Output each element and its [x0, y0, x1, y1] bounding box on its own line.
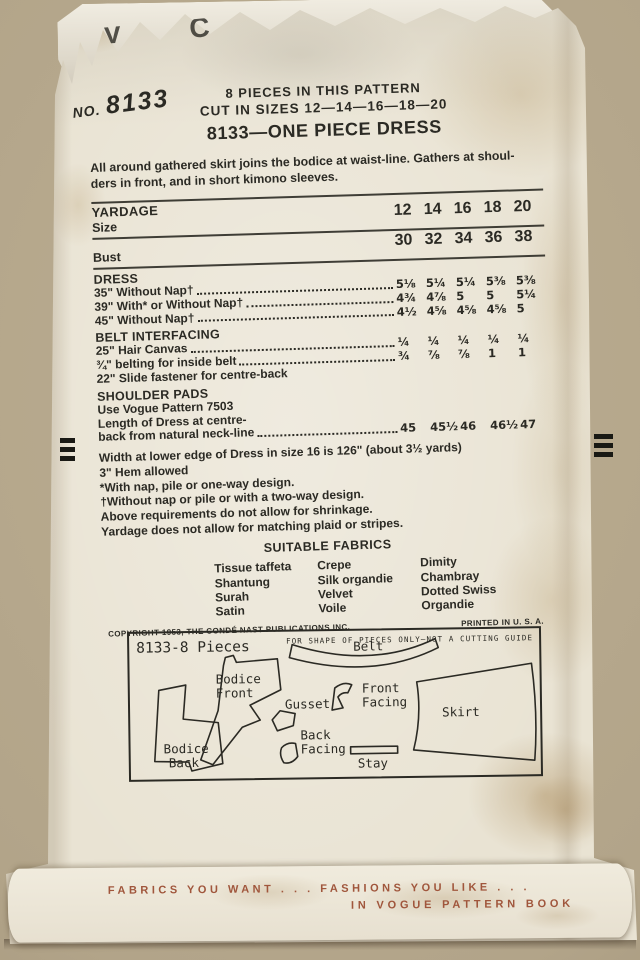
length-value: 45½ [430, 420, 460, 435]
suitable-fabrics-columns: Tissue taffetaShantungSurahSatinCrepeSil… [214, 552, 556, 619]
envelope-header: 8 PIECES IN THIS PATTERN CUT IN SIZES 12… [88, 77, 542, 148]
fabric-item: Organdie [421, 596, 497, 612]
front-facing-label: Facing [362, 694, 407, 710]
length-value: 47 [520, 418, 550, 433]
yardage-row-label: 45" Without Nap† [95, 312, 195, 329]
fabric-column: DimityChambrayDotted SwissOrgandie [420, 554, 497, 613]
yardage-value: 4⅝ [457, 303, 487, 318]
length-value: 46½ [490, 419, 520, 434]
dotted-leader [257, 431, 397, 437]
size-value: 12 [393, 201, 424, 220]
diagram-note: FOR SHAPE OF PIECES ONLY—NOT A CUTTING G… [286, 633, 533, 645]
bodice-back-label: Bodice [164, 741, 209, 757]
registration-marks-left [60, 438, 75, 465]
back-facing-piece-outline [280, 743, 297, 763]
yardage-value: ¾ [398, 349, 428, 364]
registration-bar [60, 456, 75, 461]
bust-value: 36 [484, 228, 515, 247]
yardage-value: 5¼ [456, 275, 486, 290]
yardage-value: ⅞ [458, 347, 488, 362]
fabric-item: Satin [215, 601, 318, 618]
fabric-item: Dotted Swiss [421, 582, 497, 598]
yardage-value: 1 [518, 346, 548, 361]
pattern-pieces-diagram: 8133-8 Pieces FOR SHAPE OF PIECES ONLY—N… [127, 626, 543, 782]
size-value: 20 [513, 198, 544, 217]
yardage-value: ¼ [487, 333, 517, 348]
registration-bar [594, 443, 613, 448]
back-facing-label: Facing [301, 741, 346, 757]
garment-description: All around gathered skirt joins the bodi… [90, 148, 543, 192]
size-value: 16 [453, 199, 484, 218]
gusset-label: Gusset [285, 696, 330, 712]
yardage-value: ¼ [397, 335, 427, 350]
yardage-value: 5 [486, 288, 516, 303]
printed-content: 8 PIECES IN THIS PATTERN CUT IN SIZES 12… [88, 77, 556, 639]
yardage-value: ¼ [427, 335, 457, 350]
yardage-value: 4⅞ [426, 290, 456, 305]
fabric-column: CrepeSilk organdieVelvetVoile [317, 556, 422, 616]
yardage-value: ⅞ [428, 348, 458, 363]
length-value: 46 [460, 420, 490, 435]
yardage-value: 4¾ [396, 291, 426, 306]
notes-block: Width at lower edge of Dress in size 16 … [99, 438, 553, 540]
yardage-value: 1 [488, 347, 518, 362]
yardage-value: 4½ [397, 305, 427, 320]
registration-bar [60, 447, 75, 452]
bust-value: 32 [424, 230, 455, 249]
yardage-value: 4⅝ [486, 302, 516, 317]
fabric-item: Voile [318, 598, 421, 615]
dotted-leader [197, 314, 393, 322]
length-value: 45 [400, 421, 430, 436]
size-value: 18 [483, 198, 514, 217]
banner-slogan-line1: FABRICS YOU WANT . . . FASHIONS YOU LIKE… [108, 880, 632, 897]
registration-marks-right [594, 434, 613, 461]
registration-bar [60, 438, 75, 443]
pattern-envelope-photo: V C NO.8133 8 PIECES IN THIS PATTERN CUT… [0, 0, 640, 960]
fabric-column: Tissue taffetaShantungSurahSatin [214, 559, 319, 619]
bodice-front-label: Bodice [216, 671, 261, 687]
bottom-flap: FABRICS YOU WANT . . . FASHIONS YOU LIKE… [8, 863, 633, 942]
registration-bar [594, 452, 613, 457]
bust-value: 30 [394, 231, 425, 250]
yardage-value: 4⅝ [427, 304, 457, 319]
banner-slogan-line2: IN VOGUE PATTERN BOOK [8, 898, 574, 915]
stay-label: Stay [358, 755, 389, 770]
registration-bar [594, 434, 613, 439]
bust-value: 34 [454, 229, 485, 248]
yardage-value: 5⅜ [486, 274, 516, 289]
yardage-value: 5 [516, 301, 546, 316]
length-label-line2: back from natural neck-line [98, 427, 254, 445]
yardage-value: 5¼ [516, 287, 546, 302]
gusset-piece-outline [272, 711, 295, 731]
yardage-value: ¼ [457, 334, 487, 349]
yardage-table: DRESS35" Without Nap†5⅛5¼5¼5⅜5⅜39" With*… [93, 260, 548, 373]
bodice-back-label: Back [169, 755, 200, 770]
diagram-canvas: 8133-8 Pieces FOR SHAPE OF PIECES ONLY—N… [129, 628, 541, 780]
skirt-label: Skirt [442, 704, 480, 720]
front-facing-piece-outline [332, 683, 352, 710]
bodice-front-label: Front [216, 685, 254, 701]
belt-label: Belt [353, 638, 383, 653]
size-value: 14 [423, 200, 454, 219]
bust-value: 38 [514, 228, 545, 247]
stay-piece-outline [351, 746, 398, 754]
yardage-value: ¼ [517, 332, 547, 347]
diagram-title: 8133-8 Pieces [136, 639, 250, 657]
yardage-value: 5 [456, 289, 486, 304]
